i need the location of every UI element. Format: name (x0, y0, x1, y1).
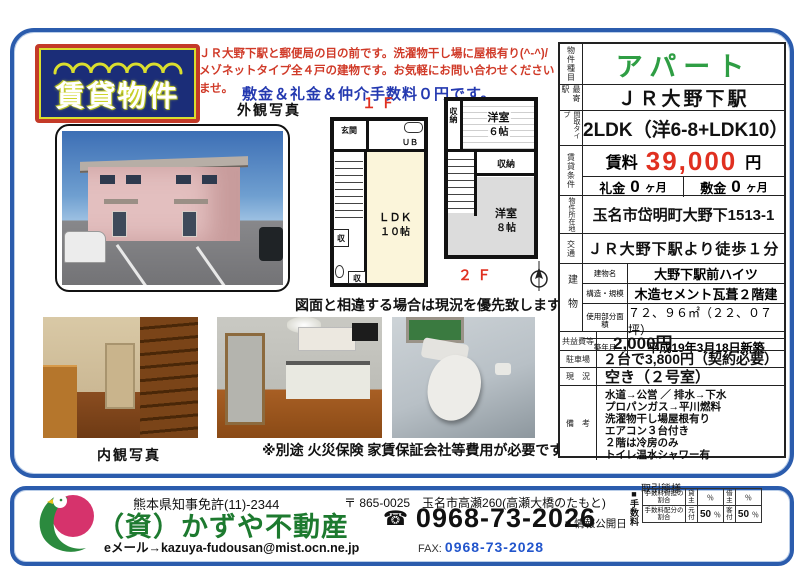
closet1-label: 収 (334, 233, 348, 244)
fax-label: FAX: (418, 543, 442, 555)
interior-photo-label: 内観写真 (97, 445, 161, 465)
rent-unit: 円 (745, 149, 761, 173)
stairs-2f (448, 153, 474, 213)
note-item: エアコン３台付き (605, 425, 784, 437)
awning (104, 199, 138, 204)
rent-label: 賃料 (606, 149, 638, 173)
wood-stairs (140, 317, 198, 438)
notes-list: 水道→公営 ／ 排水→下水 プロパンガス→平川燃料 洗濯物干し場屋根有り エアコ… (597, 386, 784, 460)
wall (477, 173, 534, 176)
note-item: トイレ温水シャワー有 (605, 449, 784, 461)
fees-disclaimer: ※別途 火災保険 家賃保証会社等費用が必要です (262, 440, 563, 460)
bathtub-icon (404, 122, 423, 133)
note-item: ２階は冷房のみ (605, 437, 784, 449)
lessee-label: 借主 (724, 489, 736, 506)
genkan-label: 玄関 (334, 125, 364, 136)
structure-label: 構造・規模 (583, 284, 628, 303)
lessor-value: ％ (697, 489, 723, 506)
wall-unit (352, 323, 378, 341)
parking-line (116, 244, 159, 285)
entrance-door (112, 211, 127, 237)
interior-photo-kitchen (217, 317, 382, 438)
property-info-table: 物件種目 アパート 最寄駅 ＪＲ大野下駅 間取タイプ 2LDK（洋6-8+LDK… (558, 42, 786, 458)
lessee-value: ％ (735, 489, 761, 506)
building-name-row: 建物名 大野下駅前ハイツ (583, 264, 784, 284)
status-label: 現 況 (560, 368, 597, 385)
plan-disclaimer: 図面と相違する場合は現況を優先致します。 (295, 295, 574, 315)
closet2-label: 収 (349, 273, 365, 284)
rent-amount: 39,000 (646, 146, 738, 177)
deposit-label: 敷金 (700, 178, 726, 197)
parking-label: 駐車場 (560, 351, 597, 367)
row-station: 最寄駅 ＪＲ大野下駅 (560, 85, 784, 111)
toilet-icon (335, 265, 344, 278)
parking-line (196, 246, 239, 285)
finding-agent-label: 客付 (724, 506, 736, 523)
address-label: 物件所在地 (560, 196, 583, 233)
building-name-value: 大野下駅前ハイツ (628, 264, 784, 283)
access-label: 交通 (560, 234, 583, 263)
storage1-label: 収納 (448, 107, 459, 123)
interior-photo-hallway (43, 317, 198, 438)
key-money-unit: ヶ月 (645, 179, 667, 195)
property-type-value: アパート (583, 44, 784, 84)
phone-icon: ☎ (383, 506, 408, 531)
exterior-photo-frame (55, 124, 290, 292)
interior-photo-toilet (392, 317, 535, 438)
row-building: 建物 建物名 大野下駅前ハイツ 構造・規模 木造セメント瓦葺２階建 使用部分面積… (560, 264, 784, 332)
wood-cabinet (43, 365, 77, 438)
fax-number: 0968-73-2028 (445, 539, 544, 555)
note-item: 水道→公営 ／ 排水→下水 (605, 389, 784, 401)
row-layout: 間取タイプ 2LDK（洋6-8+LDK10） (560, 111, 784, 146)
window (176, 175, 191, 184)
window (202, 175, 217, 184)
kitchen-counter (286, 361, 370, 399)
unit-bath-label: ＵＢ (398, 137, 422, 148)
key-money-value: 0 (630, 177, 639, 197)
storage2-label: 収納 (480, 157, 532, 170)
exterior-photo-label: 外観写真 (237, 100, 301, 120)
building-label: 建物 (560, 264, 583, 331)
commission-row: 手数料配分の割合 元付 50 ％ 客付 50 ％ (643, 506, 762, 523)
wall (366, 121, 369, 151)
row-address: 物件所在地 玉名市岱明町大野下1513-1 (560, 196, 784, 234)
common-fee-label: 共益費等 (560, 332, 597, 350)
split-row-label: 手数料配分の割合 (643, 506, 686, 523)
deposit-value: 0 (731, 177, 740, 197)
company-logo (32, 492, 98, 554)
building-facade (88, 167, 240, 241)
upper-cabinets (298, 327, 356, 351)
fax-line: FAX: 0968-73-2028 (418, 539, 544, 555)
room8-size-label: ８帖 (478, 219, 534, 234)
window (100, 175, 115, 184)
wall (334, 149, 424, 152)
note-item: 洗濯物干し場屋根有り (605, 413, 784, 425)
floor2-label: ２Ｆ (450, 265, 504, 285)
parking-value: ２台で3,800円（契約必要） (597, 351, 784, 367)
listing-agent-label: 元付 (686, 506, 698, 523)
floor1-label: １Ｆ (358, 93, 404, 113)
ldk-size-label: １０帖 (366, 223, 424, 238)
finding-agent-value: 50 ％ (735, 506, 761, 523)
paper-holder (495, 363, 511, 375)
wall (474, 152, 477, 216)
window (126, 175, 141, 184)
toilet-bowl (421, 350, 487, 427)
dark-car (259, 227, 283, 261)
floor-plan: １Ｆ ２Ｆ 玄関 ＵＢ 収 収 ＬＤＫ １０帖 収納 洋室 ６帖 収納 洋室 ８… (322, 93, 556, 295)
rent-line: 賃料 39,000 円 (583, 146, 784, 176)
status-value: 空き（２号室） (597, 368, 784, 385)
rental-logo-box: 賃貸物件 (35, 44, 200, 123)
room-door (225, 333, 265, 425)
promo-line1: ＪＲ大野下駅と郵便局の目の前です。洗濯物干し場に屋根有り(^-^)/ (199, 48, 548, 60)
exterior-photo (62, 131, 283, 285)
info-date-label: ■ 情報公開日 (565, 516, 627, 531)
layout-label: 間取タイプ (560, 111, 583, 145)
commission-row: 手数料負担の割合 貸主 ％ 借主 ％ (643, 489, 762, 506)
layout-value: 2LDK（洋6-8+LDK10） (583, 111, 784, 145)
station-value: ＪＲ大野下駅 (583, 85, 784, 110)
row-property-type: 物件種目 アパート (560, 44, 784, 85)
note-item: プロパンガス→平川燃料 (605, 401, 784, 413)
compass-icon (526, 259, 552, 293)
notes-label: 備 考 (560, 386, 597, 460)
deposit-line: 礼金 0 ヶ月 敷金 0 ヶ月 (583, 176, 784, 197)
white-van (64, 231, 106, 263)
key-money: 礼金 0 ヶ月 (583, 177, 683, 197)
wall (448, 149, 534, 152)
key-money-label: 礼金 (599, 178, 625, 197)
hall-doorway (105, 343, 135, 409)
listing-agent-value: 50 ％ (697, 506, 723, 523)
row-access: 交通 ＪＲ大野下駅より徒歩１分 (560, 234, 784, 264)
access-value: ＪＲ大野下駅より徒歩１分 (583, 234, 784, 263)
entrance-door (182, 211, 197, 237)
property-type-label: 物件種目 (560, 44, 583, 84)
common-fee-value: 2,000円 (597, 332, 784, 350)
terms-label: 賃貸条件 (560, 146, 583, 195)
structure-row: 構造・規模 木造セメント瓦葺２階建 (583, 284, 784, 304)
rental-logo-text: 賃貸物件 (39, 73, 196, 115)
deposit-unit: ヶ月 (746, 179, 768, 195)
commission-row-label: 手数料負担の割合 (643, 489, 686, 506)
structure-value: 木造セメント瓦葺２階建 (628, 284, 784, 303)
station-label: 最寄駅 (560, 85, 583, 110)
company-email: eメール→kazuya-fudousan@mist.ocn.ne.jp (104, 537, 359, 556)
lessor-label: 貸主 (686, 489, 698, 506)
deposit: 敷金 0 ヶ月 (683, 177, 784, 197)
awning (174, 199, 208, 204)
row-rental-terms: 賃貸条件 賃料 39,000 円 礼金 0 ヶ月 敷金 0 ヶ月 (560, 146, 784, 196)
address-value: 玉名市岱明町大野下1513-1 (583, 196, 784, 233)
room6-size-label: ６帖 (463, 123, 534, 138)
row-notes: 備 考 水道→公営 ／ 排水→下水 プロパンガス→平川燃料 洗濯物干し場屋根有り… (560, 386, 784, 460)
commission-table: 手数料負担の割合 貸主 ％ 借主 ％ 手数料配分の割合 元付 50 ％ 客付 5… (642, 488, 762, 523)
commission-title: ■手数料 (628, 489, 641, 526)
row-status: 現 況 空き（２号室） (560, 368, 784, 386)
building-name-label: 建物名 (583, 264, 628, 283)
stairs-1f (335, 155, 363, 221)
